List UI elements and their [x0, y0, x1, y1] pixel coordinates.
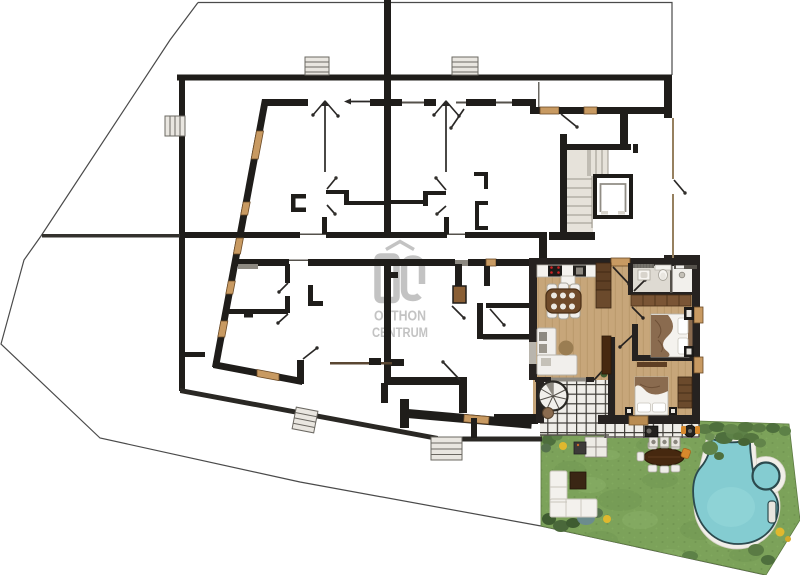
- svg-text:CENTRUM: CENTRUM: [372, 325, 428, 340]
- svg-text:OTTHON: OTTHON: [374, 309, 426, 325]
